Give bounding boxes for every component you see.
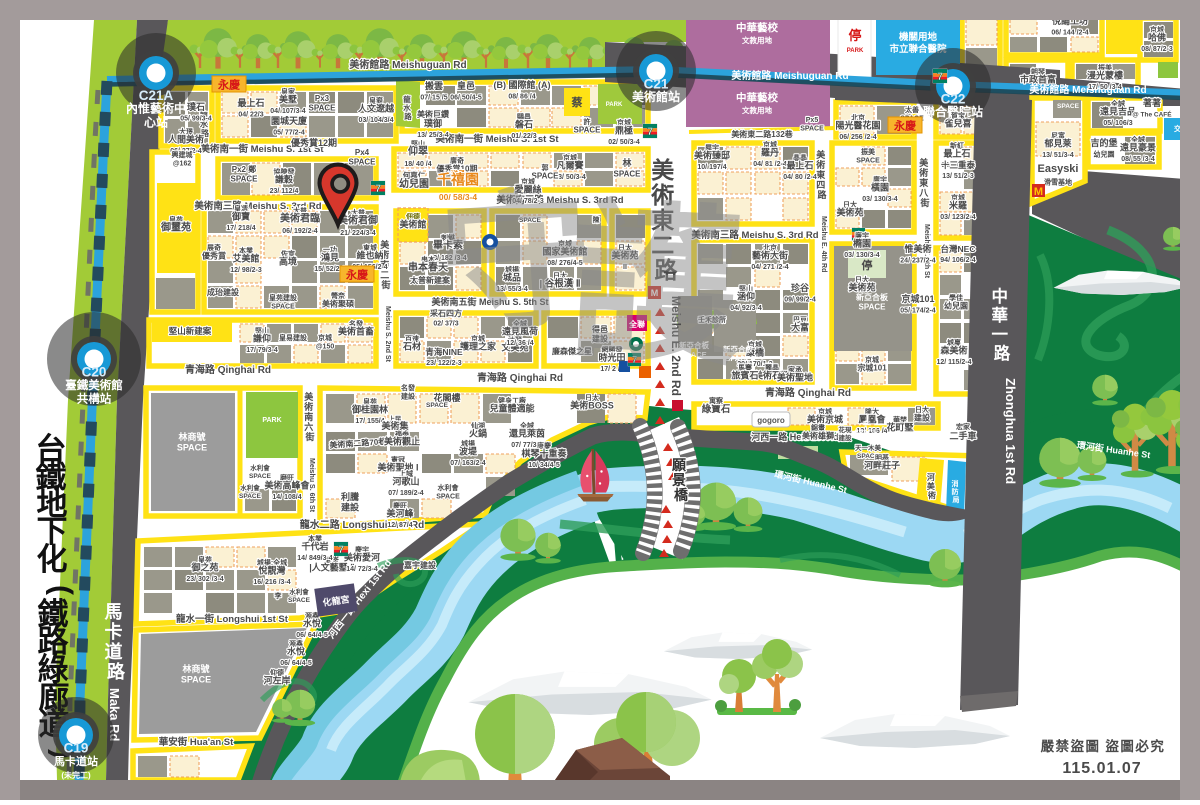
svg-text:17/ 155/4: 17/ 155/4 bbox=[355, 418, 384, 425]
svg-text:維也納: 維也納 bbox=[356, 250, 383, 261]
svg-text:天一木美: 天一木美 bbox=[855, 443, 882, 452]
svg-text:SPACE: SPACE bbox=[426, 402, 449, 409]
svg-text:護: 護 bbox=[565, 188, 747, 387]
svg-text:珍谷: 珍谷 bbox=[791, 282, 810, 293]
svg-text:04/ 107/3-4: 04/ 107/3-4 bbox=[270, 108, 306, 115]
svg-text:心站: 心站 bbox=[144, 115, 168, 130]
svg-text:23/ 112/4: 23/ 112/4 bbox=[270, 188, 299, 195]
svg-text:美術雄獅: 美術雄獅 bbox=[802, 431, 834, 441]
svg-text:04/ 81 /2-4: 04/ 81 /2-4 bbox=[753, 161, 787, 168]
svg-text:藝術大街: 藝術大街 bbox=[752, 250, 788, 261]
svg-text:14/ 849/3-4: 14/ 849/3-4 bbox=[297, 555, 333, 562]
svg-text:美河峰: 美河峰 bbox=[386, 508, 414, 519]
svg-text:SPACE: SPACE bbox=[231, 175, 259, 184]
svg-text:@162: @162 bbox=[173, 161, 192, 168]
svg-text:十三重泰: 十三重泰 bbox=[941, 160, 976, 170]
svg-text:凡爾賽: 凡爾賽 bbox=[555, 160, 584, 171]
svg-text:美術首畜: 美術首畜 bbox=[338, 326, 374, 337]
svg-text:Meishu E. 4th Rd: Meishu E. 4th Rd bbox=[820, 216, 827, 272]
svg-text:美術巨鑽: 美術巨鑽 bbox=[417, 109, 449, 119]
svg-text:美術愛河: 美術愛河 bbox=[344, 552, 380, 563]
svg-text:06/ 256 /2-4: 06/ 256 /2-4 bbox=[839, 134, 876, 141]
svg-text:23/ 122/2-3: 23/ 122/2-3 bbox=[426, 360, 462, 367]
svg-text:林: 林 bbox=[622, 157, 632, 168]
svg-text:皇邑: 皇邑 bbox=[457, 80, 475, 91]
svg-text:Px3: Px3 bbox=[315, 94, 330, 103]
svg-text:中華藝校: 中華藝校 bbox=[736, 21, 778, 34]
svg-text:龍 水 路: 龍 水 路 bbox=[403, 94, 413, 121]
svg-text:嚴禁盜圖 盜圖必究: 嚴禁盜圖 盜圖必究 bbox=[1041, 738, 1166, 754]
svg-text:消 防 局: 消 防 局 bbox=[952, 479, 961, 504]
svg-text:美術高峰會: 美術高峰會 bbox=[264, 480, 310, 491]
svg-text:李: 李 bbox=[862, 419, 871, 428]
svg-text:04/ 80 /2-4: 04/ 80 /2-4 bbox=[783, 174, 817, 181]
svg-text:千代岩: 千代岩 bbox=[301, 541, 328, 552]
svg-text:21/ 224/3-4: 21/ 224/3-4 bbox=[340, 230, 376, 237]
svg-text:水利會: 水利會 bbox=[250, 463, 270, 472]
svg-text:利騰: 利騰 bbox=[340, 491, 360, 502]
svg-text:謙仰: 謙仰 bbox=[253, 333, 271, 344]
svg-text:御之苑: 御之苑 bbox=[190, 562, 218, 573]
svg-text:郁見莱: 郁見莱 bbox=[1043, 138, 1072, 149]
svg-text:06/ 144 /2-4: 06/ 144 /2-4 bbox=[1051, 30, 1088, 37]
svg-text:臺鐵美術館: 臺鐵美術館 bbox=[65, 378, 123, 392]
svg-text:米羅: 米羅 bbox=[948, 200, 967, 211]
svg-text:Zhonghua 1st Rd: Zhonghua 1st Rd bbox=[1003, 378, 1018, 484]
svg-text:名發: 名發 bbox=[401, 383, 416, 392]
svg-text:建設: 建設 bbox=[401, 392, 416, 401]
svg-text:SPACE: SPACE bbox=[181, 675, 211, 685]
svg-text:03/ 104/3/4: 03/ 104/3/4 bbox=[358, 117, 393, 124]
svg-text:皇易建設: 皇易建設 bbox=[279, 333, 308, 342]
svg-text:內惟藝術中: 內惟藝術中 bbox=[126, 101, 186, 116]
svg-text:最上石: 最上石 bbox=[786, 160, 813, 171]
svg-text:哈佛: 哈佛 bbox=[1148, 32, 1166, 43]
svg-text:SPACE: SPACE bbox=[288, 597, 311, 604]
svg-text:Px2 鄭: Px2 鄭 bbox=[232, 164, 256, 174]
svg-text:美 術 東 八 街: 美 術 東 八 街 bbox=[918, 157, 931, 208]
svg-text:17/ 79/3-4: 17/ 79/3-4 bbox=[246, 347, 278, 354]
svg-text:05/ 77/2-4: 05/ 77/2-4 bbox=[273, 130, 305, 137]
svg-text:06/ 64/4-5: 06/ 64/4-5 bbox=[296, 632, 328, 639]
svg-text:Px4: Px4 bbox=[355, 148, 370, 157]
svg-text:12/ 87/4: 12/ 87/4 bbox=[387, 522, 412, 529]
svg-text:堅山新建案: 堅山新建案 bbox=[169, 326, 212, 336]
svg-text:圜城天廈: 圜城天廈 bbox=[271, 115, 308, 126]
svg-text:美術苑: 美術苑 bbox=[848, 282, 875, 293]
svg-text:石材: 石材 bbox=[402, 341, 421, 352]
svg-text:(B) 國際館 (A): (B) 國際館 (A) bbox=[494, 79, 551, 90]
svg-text:PARK: PARK bbox=[262, 417, 281, 424]
svg-text:7: 7 bbox=[338, 544, 344, 556]
svg-text:鴻見: 鴻見 bbox=[321, 252, 339, 263]
svg-text:漫光蒙樓: 漫光蒙樓 bbox=[1087, 70, 1123, 81]
svg-text:宏家: 宏家 bbox=[956, 422, 971, 431]
svg-text:02/ 50/3-4: 02/ 50/3-4 bbox=[608, 139, 640, 146]
svg-text:12/ 98/2-3: 12/ 98/2-3 bbox=[230, 267, 262, 274]
svg-text:河畔莊子: 河畔莊子 bbox=[864, 460, 900, 471]
svg-text:最上石: 最上石 bbox=[943, 148, 970, 159]
svg-text:06/ 192/2-4: 06/ 192/2-4 bbox=[282, 228, 318, 235]
svg-text:華安街 Hua'an St: 華安街 Hua'an St bbox=[159, 736, 234, 748]
svg-text:新亞合板: 新亞合板 bbox=[856, 292, 889, 302]
svg-text:遠見豪景: 遠見豪景 bbox=[1120, 142, 1156, 153]
svg-text:幼兒園: 幼兒園 bbox=[1094, 150, 1115, 159]
svg-text:水利會: 水利會 bbox=[240, 483, 260, 492]
svg-text:7: 7 bbox=[375, 183, 381, 195]
svg-text:馬 卡 道 路: 馬 卡 道 路 bbox=[104, 602, 127, 682]
svg-text:07/ 189/2-4: 07/ 189/2-4 bbox=[388, 490, 424, 497]
svg-text:蔡: 蔡 bbox=[571, 95, 583, 109]
svg-text:04/ 271 /2-4: 04/ 271 /2-4 bbox=[751, 264, 788, 271]
svg-text:SPACE: SPACE bbox=[800, 126, 824, 133]
svg-text:停: 停 bbox=[848, 28, 861, 43]
svg-text:美術館站: 美術館站 bbox=[632, 89, 680, 104]
svg-text:鼎極: 鼎極 bbox=[615, 125, 633, 136]
svg-text:台灣NEC: 台灣NEC bbox=[941, 244, 976, 254]
svg-text:御寶: 御寶 bbox=[231, 211, 250, 222]
svg-text:(: ( bbox=[45, 585, 78, 595]
svg-text:美術館: 美術館 bbox=[399, 219, 426, 230]
svg-text:嘉宇建設: 嘉宇建設 bbox=[403, 560, 437, 570]
svg-text:05/ 174/2-4: 05/ 174/2-4 bbox=[900, 308, 936, 315]
svg-text:水悅: 水悅 bbox=[303, 618, 322, 629]
svg-text:馬卡道站: 馬卡道站 bbox=[54, 754, 98, 768]
svg-text:04/ 22/3: 04/ 22/3 bbox=[238, 112, 263, 119]
svg-text:115.01.07: 115.01.07 bbox=[1062, 760, 1141, 777]
svg-text:橫園: 橫園 bbox=[871, 182, 889, 193]
svg-text:李: 李 bbox=[274, 591, 283, 600]
svg-text:停: 停 bbox=[862, 258, 873, 272]
svg-text:宗城101: 宗城101 bbox=[857, 363, 887, 373]
svg-text:07/ 163/2-4: 07/ 163/2-4 bbox=[450, 460, 486, 467]
svg-text:花町墅: 花町墅 bbox=[886, 422, 913, 433]
svg-text:05/ 99/3-4: 05/ 99/3-4 bbox=[180, 116, 212, 123]
svg-text:01/ 22/3: 01/ 22/3 bbox=[511, 133, 536, 140]
svg-text:龍水一街 Longshui 1st St: 龍水一街 Longshui 1st St bbox=[176, 613, 289, 625]
svg-text:12/ 115/2-4: 12/ 115/2-4 bbox=[936, 359, 971, 366]
svg-text:遠見吉品: 遠見吉品 bbox=[1100, 106, 1136, 117]
svg-text:Meishu S. 2nd St: Meishu S. 2nd St bbox=[384, 306, 391, 363]
svg-text:建設: 建設 bbox=[913, 413, 931, 423]
svg-text:謙穀: 謙穀 bbox=[275, 174, 294, 185]
svg-text:SPACE: SPACE bbox=[177, 443, 207, 453]
svg-text:18/ 40 /4: 18/ 40 /4 bbox=[404, 161, 431, 168]
svg-text:美墅: 美墅 bbox=[279, 94, 297, 105]
svg-text:太善: 太善 bbox=[905, 105, 919, 114]
svg-text:06/ 50/4-5: 06/ 50/4-5 bbox=[450, 95, 482, 102]
svg-text:SPACE: SPACE bbox=[854, 430, 878, 437]
svg-text:波堤: 波堤 bbox=[459, 446, 478, 457]
svg-text:M: M bbox=[1034, 186, 1043, 198]
svg-text:SPACE: SPACE bbox=[436, 494, 460, 501]
svg-text:03/ 130/3-4: 03/ 130/3-4 bbox=[862, 196, 898, 203]
svg-text:水悅: 水悅 bbox=[287, 646, 306, 657]
svg-text:中 華 一 路: 中 華 一 路 bbox=[991, 286, 1012, 363]
svg-text:棋琴十重奏: 棋琴十重奏 bbox=[520, 448, 567, 459]
svg-text:優秀賞12期: 優秀賞12期 bbox=[290, 137, 337, 148]
svg-text:美術臻邸: 美術臻邸 bbox=[694, 150, 730, 161]
svg-text:@ The CAFÉ: @ The CAFÉ bbox=[1132, 110, 1172, 119]
svg-text:大富: 大富 bbox=[791, 322, 809, 333]
svg-text:14/ 72/3-4: 14/ 72/3-4 bbox=[346, 566, 378, 573]
svg-text:振美: 振美 bbox=[861, 147, 876, 156]
svg-text:美術南一街 Meishu S. 1st St: 美術南一街 Meishu S. 1st St bbox=[435, 133, 560, 145]
svg-text:御桂園林: 御桂園林 bbox=[351, 404, 389, 415]
svg-text:SPACE: SPACE bbox=[856, 158, 880, 165]
svg-text:兒童體適能: 兒童體適能 bbox=[489, 403, 534, 414]
svg-text:美 術 南 六 街: 美 術 南 六 街 bbox=[303, 391, 316, 442]
svg-text:美術BOSS: 美術BOSS bbox=[570, 400, 614, 411]
svg-text:共構站: 共構站 bbox=[77, 392, 112, 406]
svg-text:幼兒園: 幼兒園 bbox=[399, 177, 429, 190]
svg-text:人文遼越: 人文遼越 bbox=[357, 103, 395, 114]
svg-text:皇苑建設: 皇苑建設 bbox=[269, 293, 298, 302]
svg-text:林商號: 林商號 bbox=[182, 663, 209, 674]
svg-text:成珆建設: 成珆建設 bbox=[207, 287, 240, 297]
svg-text:03/ 130/3-4: 03/ 130/3-4 bbox=[844, 252, 880, 259]
svg-text:美術聚碩: 美術聚碩 bbox=[322, 299, 354, 309]
svg-text:青海路 Qinghai Rd: 青海路 Qinghai Rd bbox=[765, 386, 851, 399]
svg-text:幼兒園: 幼兒園 bbox=[944, 301, 968, 311]
svg-text:SPACE: SPACE bbox=[859, 303, 887, 312]
svg-text:SPACE: SPACE bbox=[349, 158, 377, 167]
svg-text:23/ 302 /3-4: 23/ 302 /3-4 bbox=[186, 576, 223, 583]
svg-text:06/ 64/4-5: 06/ 64/4-5 bbox=[280, 660, 312, 667]
svg-text:寓察: 寓察 bbox=[709, 396, 724, 405]
svg-text:美術君臨: 美術君臨 bbox=[280, 212, 320, 225]
svg-text:水利會: 水利會 bbox=[289, 587, 309, 596]
svg-text:Easyski: Easyski bbox=[1038, 163, 1079, 175]
svg-text:SPACE: SPACE bbox=[1057, 103, 1080, 110]
svg-text:10/ 197/4: 10/ 197/4 bbox=[697, 164, 726, 171]
svg-text:永慶: 永慶 bbox=[893, 119, 916, 133]
svg-text:中華藝校: 中華藝校 bbox=[736, 91, 778, 104]
svg-text:還見萊茵: 還見萊茵 bbox=[509, 428, 545, 439]
svg-text:03/ 123/2-4: 03/ 123/2-4 bbox=[940, 214, 976, 221]
svg-text:河 美 術: 河 美 術 bbox=[927, 472, 937, 500]
svg-text:惟美術: 惟美術 bbox=[904, 243, 931, 254]
svg-text:7: 7 bbox=[647, 126, 653, 138]
svg-text:著著: 著著 bbox=[1143, 97, 1161, 108]
svg-text:17/ 50 /3-4: 17/ 50 /3-4 bbox=[1088, 84, 1122, 91]
svg-text:(未完工): (未完工) bbox=[61, 770, 91, 780]
svg-text:SPACE: SPACE bbox=[614, 170, 642, 179]
svg-text:京城101: 京城101 bbox=[901, 293, 934, 304]
svg-text:美術觀止: 美術觀止 bbox=[384, 436, 420, 447]
svg-text:陽光醫花園: 陽光醫花園 bbox=[835, 120, 880, 131]
svg-text:Px5: Px5 bbox=[806, 117, 819, 124]
svg-text:SPACE: SPACE bbox=[574, 126, 602, 135]
svg-text:美術東二路132巷: 美術東二路132巷 bbox=[731, 129, 793, 139]
svg-text:美術京城: 美術京城 bbox=[807, 414, 843, 425]
svg-text:花現: 花現 bbox=[839, 425, 853, 434]
svg-text:磐石: 磐石 bbox=[514, 119, 533, 130]
svg-text:13/ 51/3-4: 13/ 51/3-4 bbox=[1042, 152, 1074, 159]
svg-text:機關用地: 機關用地 bbox=[899, 31, 938, 43]
svg-text:興建城: 興建城 bbox=[172, 150, 193, 159]
svg-text:仰翠: 仰翠 bbox=[408, 145, 428, 158]
svg-text:河左岸: 河左岸 bbox=[263, 675, 290, 686]
svg-text:SPACE: SPACE bbox=[271, 304, 295, 311]
svg-text:雀兒喜: 雀兒喜 bbox=[943, 118, 971, 129]
svg-text:C19: C19 bbox=[64, 741, 89, 756]
svg-text:市政首富: 市政首富 bbox=[1020, 74, 1056, 85]
svg-text:美術館路 Meishuguan Rd: 美術館路 Meishuguan Rd bbox=[349, 58, 466, 71]
svg-text:水利會: 水利會 bbox=[438, 483, 460, 492]
svg-text:08/ 86 /4: 08/ 86 /4 bbox=[508, 94, 535, 101]
svg-text:火鍋: 火鍋 bbox=[469, 428, 487, 439]
svg-text:14/ 108/4: 14/ 108/4 bbox=[272, 494, 301, 501]
svg-text:08/ 87/2-3: 08/ 87/2-3 bbox=[1141, 46, 1173, 53]
svg-text:美術集: 美術集 bbox=[381, 420, 409, 431]
svg-text:16/ 216 /3-4: 16/ 216 /3-4 bbox=[253, 579, 290, 586]
svg-text:美術聖地: 美術聖地 bbox=[777, 372, 813, 383]
svg-text:24/ 237/2-4: 24/ 237/2-4 bbox=[900, 258, 936, 265]
svg-text:艾美館: 艾美館 bbox=[232, 253, 259, 264]
svg-text:17/ 218/4: 17/ 218/4 bbox=[226, 225, 255, 232]
svg-text:05/ 106/3: 05/ 106/3 bbox=[1103, 120, 1132, 127]
svg-text:文教用地: 文教用地 bbox=[742, 105, 772, 115]
svg-text:SPACE: SPACE bbox=[309, 104, 337, 113]
svg-text:C20: C20 bbox=[82, 365, 107, 380]
svg-text:@150: @150 bbox=[316, 344, 335, 351]
svg-text:最上石: 最上石 bbox=[237, 97, 264, 108]
svg-text:94/ 106/2-4: 94/ 106/2-4 bbox=[940, 257, 976, 264]
svg-text:吉的堡: 吉的堡 bbox=[1090, 137, 1117, 148]
svg-text:永慶: 永慶 bbox=[345, 268, 368, 282]
svg-text:10/ 34/4-5: 10/ 34/4-5 bbox=[528, 462, 560, 469]
svg-text:二手車: 二手車 bbox=[949, 430, 976, 441]
svg-text:化: 化 bbox=[37, 542, 68, 577]
svg-text:08/ 55 /3-4: 08/ 55 /3-4 bbox=[1121, 156, 1155, 163]
svg-text:高境: 高境 bbox=[279, 256, 297, 267]
svg-text:美術館路 Meishuguan Rd: 美術館路 Meishuguan Rd bbox=[731, 69, 848, 82]
svg-text:永慶: 永慶 bbox=[217, 78, 240, 92]
svg-text:森美術: 森美術 bbox=[940, 345, 967, 356]
svg-text:河歌山: 河歌山 bbox=[392, 476, 419, 487]
svg-text:PARK: PARK bbox=[606, 102, 623, 108]
svg-text:7: 7 bbox=[937, 71, 943, 83]
svg-text:美術苑: 美術苑 bbox=[836, 207, 863, 218]
svg-text:林商號: 林商號 bbox=[178, 431, 205, 442]
svg-text:SPACE: SPACE bbox=[249, 473, 272, 480]
svg-text:文教用地: 文教用地 bbox=[742, 35, 772, 45]
svg-text:建設: 建設 bbox=[341, 502, 360, 513]
svg-text:13/ 51/2-3: 13/ 51/2-3 bbox=[942, 173, 974, 180]
svg-text:御璽苑: 御璽苑 bbox=[160, 221, 191, 234]
svg-text:璞石: 璞石 bbox=[187, 101, 205, 112]
svg-text:13/ 25/3-4: 13/ 25/3-4 bbox=[417, 132, 449, 139]
svg-text:願 景 橋: 願 景 橋 bbox=[672, 457, 690, 503]
svg-text:搬雲: 搬雲 bbox=[425, 80, 443, 91]
svg-text:建設: 建設 bbox=[838, 433, 853, 442]
svg-text:SPACE: SPACE bbox=[239, 493, 262, 500]
svg-text:青海路 Qinghai Rd: 青海路 Qinghai Rd bbox=[185, 363, 271, 376]
svg-text:09/ 99/2-4: 09/ 99/2-4 bbox=[784, 297, 816, 304]
svg-text:07/ 15 /5: 07/ 15 /5 bbox=[420, 95, 447, 102]
svg-text:橢園: 橢園 bbox=[853, 238, 871, 249]
svg-text:羅丹: 羅丹 bbox=[761, 148, 779, 158]
svg-text:PARK: PARK bbox=[847, 48, 864, 54]
svg-text:gogoro: gogoro bbox=[757, 416, 785, 425]
svg-text:滑雪基地: 滑雪基地 bbox=[1044, 178, 1072, 187]
svg-text:京城: 京城 bbox=[318, 333, 332, 342]
svg-text:人間美術: 人間美術 bbox=[167, 134, 204, 145]
svg-text:優秀賞: 優秀賞 bbox=[201, 251, 226, 261]
svg-text:青海路 Qinghai Rd: 青海路 Qinghai Rd bbox=[477, 371, 563, 384]
svg-text:悅靚灣: 悅靚灣 bbox=[258, 565, 285, 576]
svg-text:璞御: 璞御 bbox=[424, 118, 442, 129]
svg-text:美 術 東 四 路: 美 術 東 四 路 bbox=[815, 149, 828, 200]
